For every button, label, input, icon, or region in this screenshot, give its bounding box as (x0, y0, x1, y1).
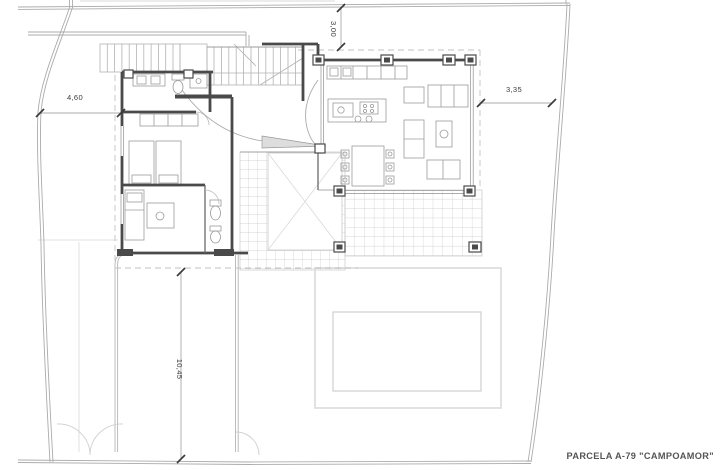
garden-walls (115, 255, 238, 452)
bidet (211, 231, 221, 243)
floor-plan-sheet: 4,60 3,35 3,00 10,45 PARCELA A-79 "CAMPO… (0, 0, 726, 470)
bar-stool (355, 116, 361, 122)
bed (156, 141, 181, 186)
dimension-label-right: 3,35 (506, 85, 522, 94)
terrace-tiled-area (345, 190, 482, 256)
side-gate-leaf (236, 432, 259, 455)
bed (125, 190, 144, 240)
pool-deck (315, 268, 501, 408)
desk-chair (156, 212, 164, 220)
pillow (132, 175, 151, 183)
armchair (404, 87, 424, 103)
pillow (159, 175, 178, 183)
coffee-table (436, 121, 452, 147)
second-bedroom-furniture (125, 190, 174, 240)
ensuite-bathroom-fixtures (210, 200, 221, 243)
exterior-staircase (100, 44, 256, 72)
kitchen-island (328, 99, 386, 122)
dimension-label-bottom: 10,45 (175, 359, 184, 380)
entrance-gates (57, 424, 259, 455)
double-gate-left-leaf (57, 424, 90, 455)
toilet-tank (172, 74, 184, 80)
storage-unit (428, 85, 468, 107)
courtyard-tiled-patio (240, 152, 345, 270)
dining-set (341, 146, 394, 186)
dining-table (352, 146, 384, 186)
twin-bedroom-furniture (129, 114, 198, 186)
interior-staircase (207, 47, 303, 85)
washbasin (151, 76, 160, 84)
desk (147, 203, 174, 228)
garden-paths (38, 240, 118, 452)
sofa-front (427, 160, 460, 179)
dimension-label-top: 3,00 (329, 21, 338, 37)
parcel-title: PARCELA A-79 "CAMPOAMOR" (567, 451, 714, 461)
dimension-label-left: 4,60 (67, 93, 83, 102)
site-plan-drawing: 4,60 3,35 3,00 10,45 PARCELA A-79 "CAMPO… (0, 0, 726, 470)
pool-basin (333, 312, 481, 391)
bar-stool (366, 116, 372, 122)
bed (129, 141, 154, 186)
kitchen-counter (327, 66, 407, 79)
living-room-furniture (404, 85, 468, 179)
washbasin (137, 76, 146, 84)
bidet-tank (210, 226, 221, 231)
toilet (173, 81, 183, 94)
main-bathroom-fixtures (133, 74, 207, 94)
pillow (127, 193, 142, 202)
interior-doors (196, 112, 219, 204)
dining-chairs (341, 150, 394, 184)
swimming-pool (315, 268, 501, 408)
wardrobe (140, 114, 198, 126)
toilet (211, 206, 221, 220)
